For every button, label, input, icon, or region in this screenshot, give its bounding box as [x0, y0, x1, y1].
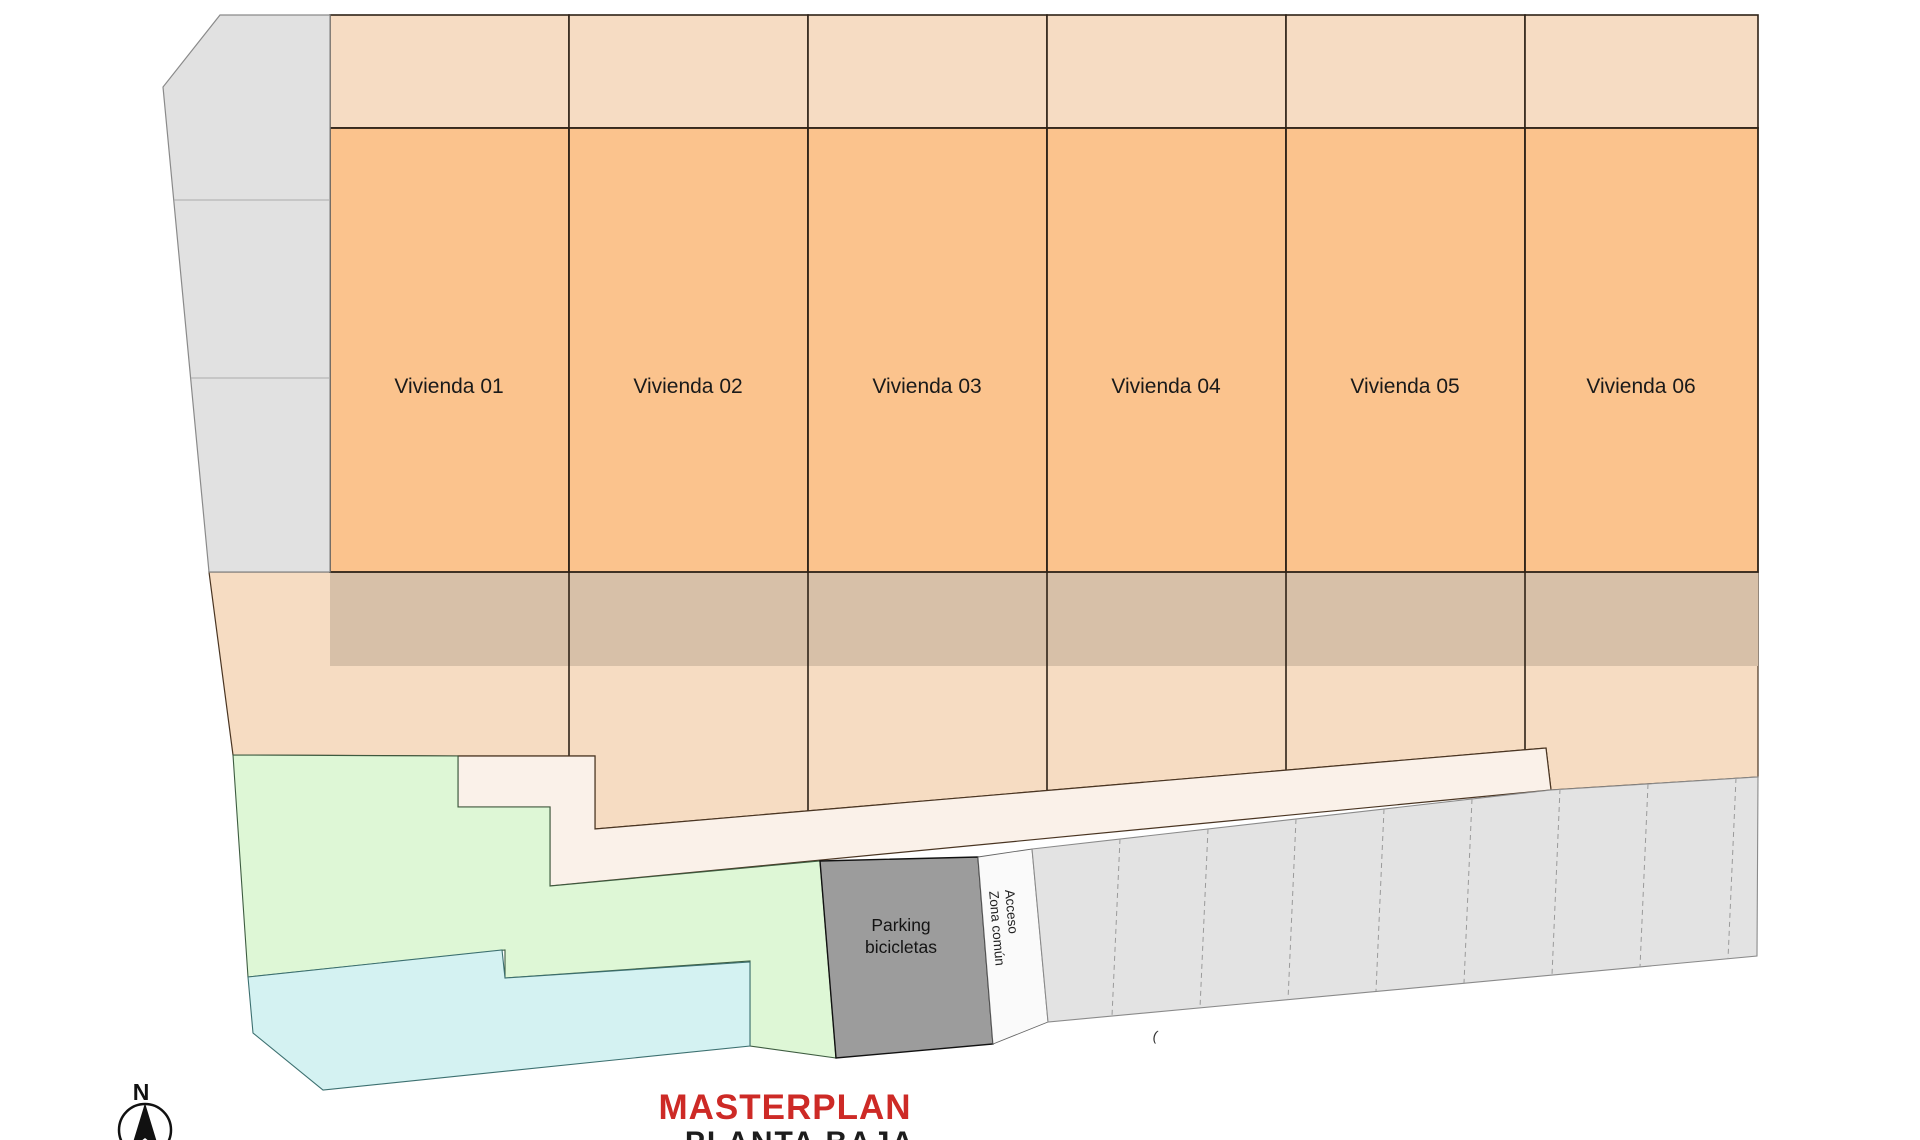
terrace-cell-4: [1047, 15, 1286, 128]
bike-parking-label-line1: Parking: [871, 915, 930, 935]
unit-label-vivienda-01: Vivienda 01: [394, 375, 503, 398]
dwelling-parcels: [330, 128, 1758, 572]
bike-parking-box: [820, 857, 993, 1058]
terrace-strip: [330, 15, 1758, 128]
north-label: N: [133, 1079, 150, 1105]
sidewalk-left: [163, 15, 330, 572]
parcel-vivienda-06[interactable]: [1525, 128, 1758, 572]
shadow-band: [330, 572, 1758, 666]
bike-parking-label-line2: bicicletas: [865, 937, 937, 957]
terrace-cell-1: [330, 15, 569, 128]
parcel-vivienda-03[interactable]: [808, 128, 1047, 572]
unit-label-vivienda-05: Vivienda 05: [1350, 375, 1459, 398]
parcel-vivienda-04[interactable]: [1047, 128, 1286, 572]
pool-area: [248, 950, 750, 1090]
masterplan-canvas: Vivienda 01 Vivienda 02 Vivienda 03 Vivi…: [0, 0, 1920, 1140]
terrace-cell-6: [1525, 15, 1758, 128]
tick-mark: (: [1151, 1027, 1159, 1044]
terrace-cell-5: [1286, 15, 1525, 128]
unit-label-vivienda-04: Vivienda 04: [1111, 375, 1221, 398]
page-subtitle: PLANTA BAJA: [685, 1126, 915, 1140]
page-title: MASTERPLAN: [658, 1088, 911, 1127]
parcel-vivienda-01[interactable]: [330, 128, 569, 572]
unit-label-vivienda-06: Vivienda 06: [1586, 375, 1695, 398]
parcel-vivienda-02[interactable]: [569, 128, 808, 572]
unit-label-vivienda-03: Vivienda 03: [872, 375, 981, 398]
north-compass: N: [119, 1079, 171, 1140]
terrace-cell-2: [569, 15, 808, 128]
unit-label-vivienda-02: Vivienda 02: [633, 375, 742, 398]
parcel-vivienda-05[interactable]: [1286, 128, 1525, 572]
terrace-cell-3: [808, 15, 1047, 128]
